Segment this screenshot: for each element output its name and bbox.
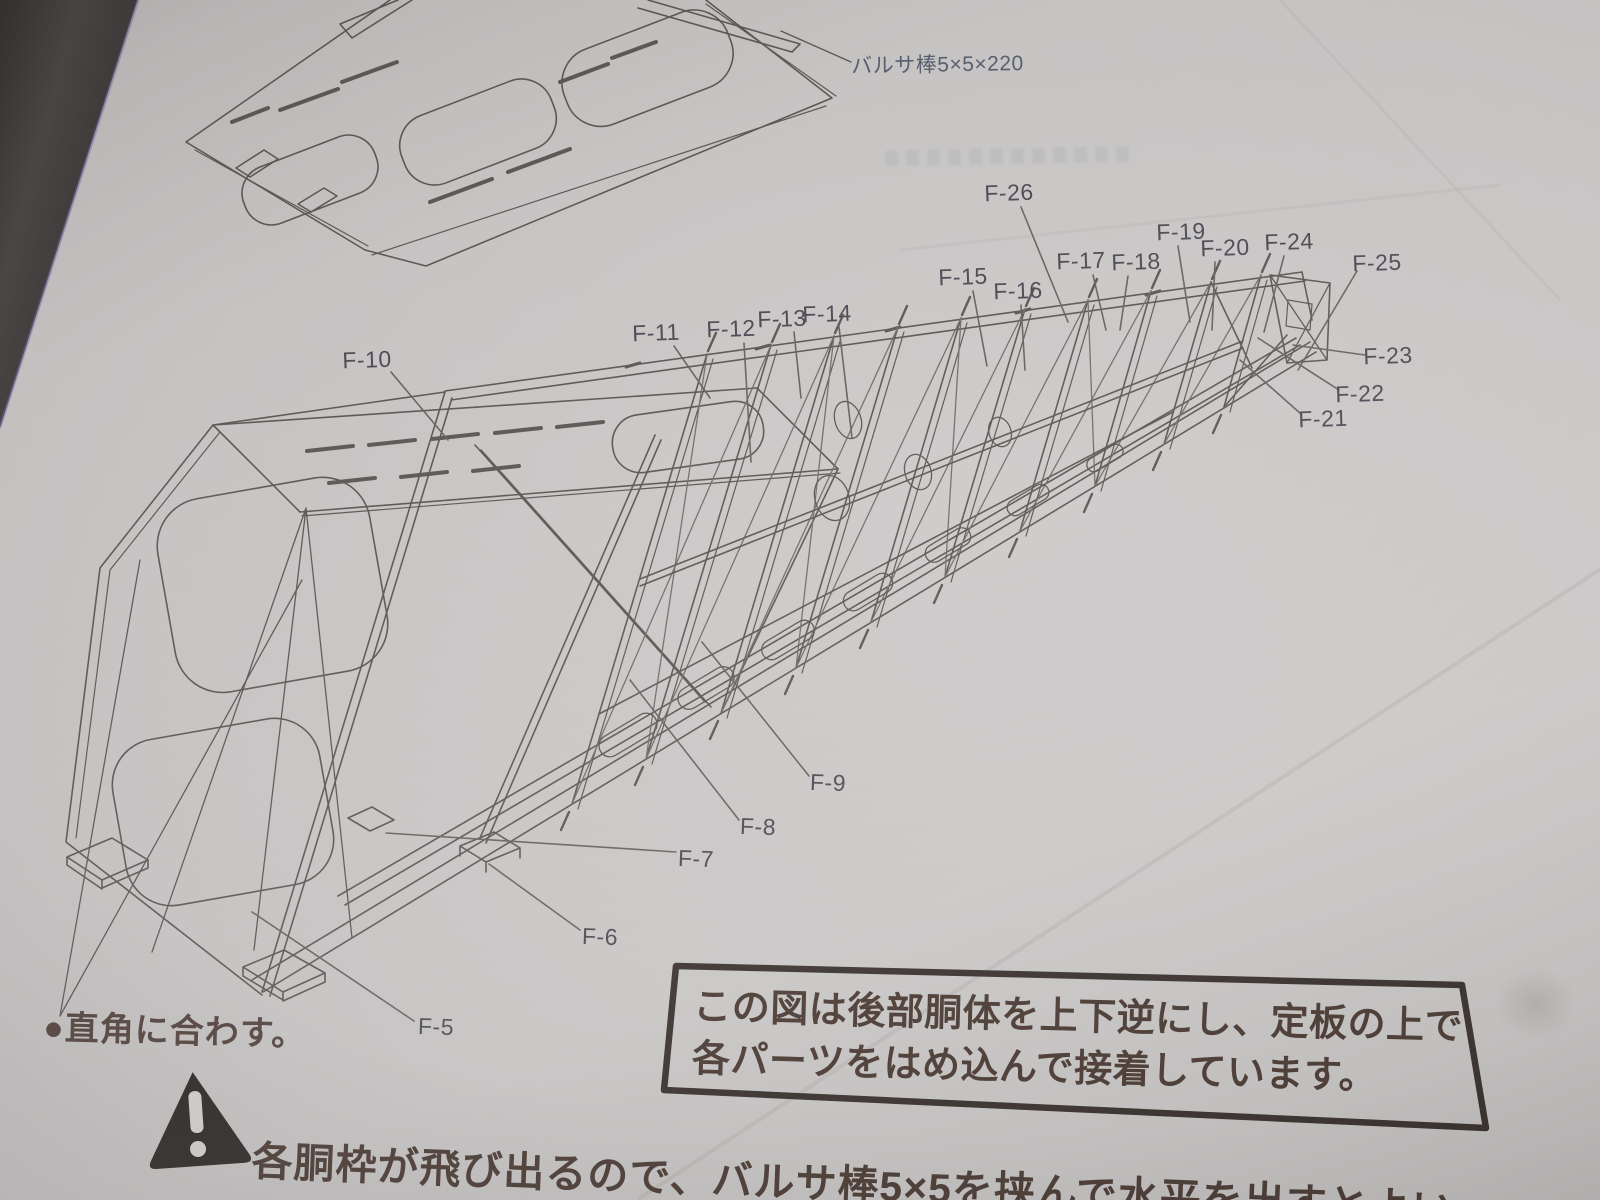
- paper-edge: [0, 0, 138, 427]
- part-label-f-12: F-12: [706, 315, 756, 344]
- part-label-f-17: F-17: [1056, 247, 1106, 276]
- leader-f-5: [252, 912, 414, 1021]
- leader-f-24: [1264, 256, 1284, 332]
- part-label-f-20: F-20: [1200, 234, 1250, 263]
- balsa-stick-label: バルサ棒5×5×220: [851, 47, 1024, 80]
- part-label-f-16: F-16: [993, 277, 1043, 306]
- part-label-f-10: F-10: [342, 346, 392, 375]
- instruction-sheet-photo: F-5F-6F-7F-8F-9F-10F-11F-12F-13F-14F-15F…: [0, 0, 1600, 1200]
- part-label-f-22: F-22: [1335, 380, 1385, 409]
- leader-f-9: [702, 642, 809, 776]
- part-label-f-13: F-13: [757, 305, 807, 334]
- part-label-f-15: F-15: [938, 263, 988, 292]
- leader-f-15: [973, 291, 987, 366]
- part-label-f-24: F-24: [1264, 228, 1314, 257]
- part-label-f-9: F-9: [810, 769, 847, 797]
- part-label-f-18: F-18: [1111, 248, 1161, 277]
- leader-f-23: [1293, 345, 1365, 355]
- part-label-f-5: F-5: [418, 1013, 455, 1041]
- part-label-f-14: F-14: [802, 300, 852, 329]
- part-label-f-26: F-26: [984, 179, 1034, 208]
- top-longeron: [445, 272, 1305, 400]
- right-angle-indicator-lines: [60, 560, 302, 1016]
- warning-triangle-icon: [144, 1069, 252, 1170]
- part-label-f-19: F-19: [1156, 218, 1206, 247]
- front-frame: [66, 392, 452, 996]
- paper-crease: [1280, 0, 1560, 300]
- top-panel-diagram: [186, 0, 851, 266]
- right-angle-note: ●直角に合わす。: [43, 1000, 307, 1056]
- leader-f-18: [1120, 276, 1128, 330]
- leader-f-21: [1240, 360, 1301, 414]
- part-label-f-7: F-7: [678, 845, 715, 873]
- balsa-leader-line: [781, 31, 851, 62]
- rear-fuselage-truss: [60, 254, 1330, 1016]
- part-label-f-23: F-23: [1363, 342, 1413, 371]
- part-label-f-11: F-11: [632, 319, 681, 348]
- leader-f-8: [630, 680, 739, 820]
- triangle-brace: [152, 508, 352, 952]
- part-label-f-25: F-25: [1352, 249, 1402, 278]
- leader-f-19: [1178, 246, 1190, 322]
- leader-f-10: [391, 372, 448, 440]
- foot-pads: [67, 838, 325, 1001]
- part-label-f-6: F-6: [582, 923, 619, 951]
- stringers: [599, 341, 1243, 714]
- cross-braces: [475, 435, 838, 843]
- leader-f-17: [1093, 275, 1106, 330]
- assembly-note-box: この図は後部胴体を上下逆にし、定板の上で 各パーツをはめ込んで接着しています。: [691, 981, 1483, 1106]
- part-label-f-8: F-8: [740, 813, 777, 841]
- far-bottom-longeron: [338, 338, 1300, 905]
- part-label-f-21: F-21: [1298, 405, 1348, 434]
- leader-f-6: [489, 864, 580, 930]
